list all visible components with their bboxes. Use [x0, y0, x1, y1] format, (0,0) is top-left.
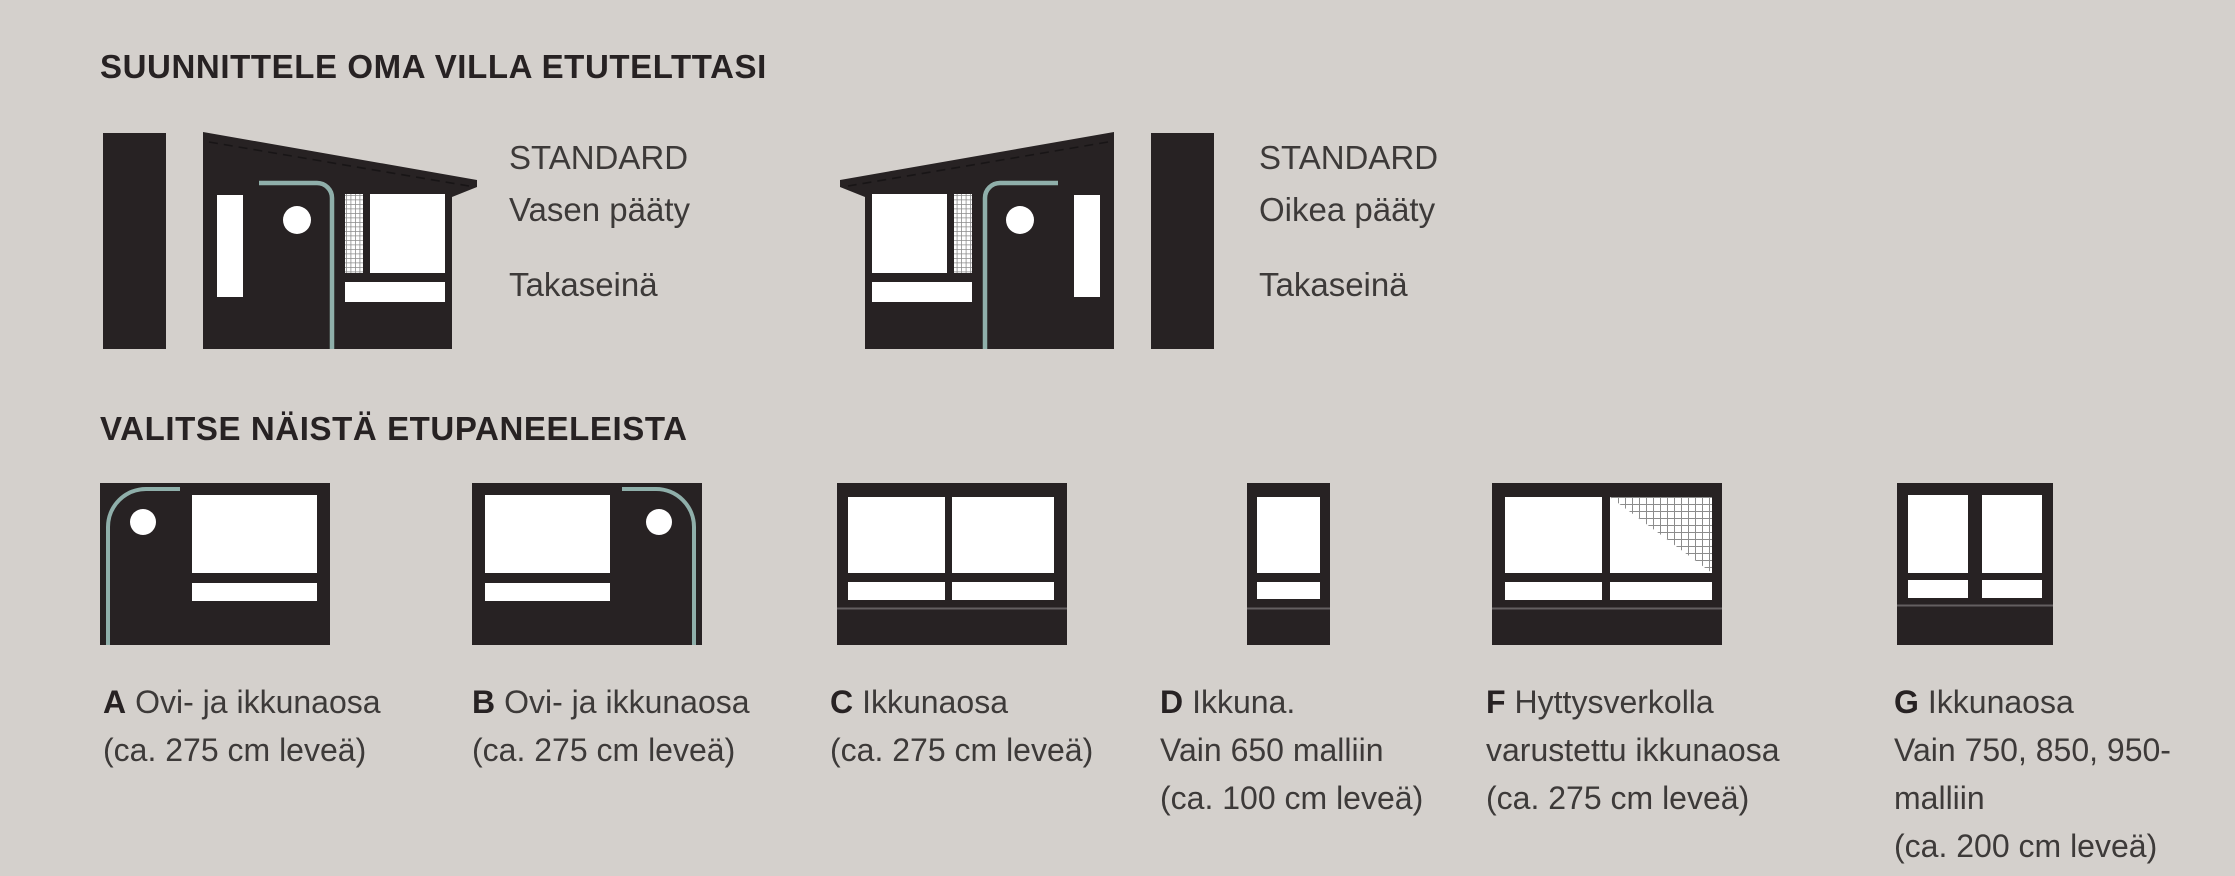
standard-end-label: Oikea pääty	[1259, 184, 1438, 236]
panel-letter: C	[830, 684, 853, 720]
panel-letter: F	[1486, 684, 1506, 720]
side-window	[217, 195, 243, 297]
standard-right-label: STANDARD Oikea pääty Takaseinä	[1259, 132, 1438, 311]
lower-window-strip	[1908, 580, 1968, 598]
panel-f-label: FHyttysverkolla varustettu ikkunaosa (ca…	[1486, 678, 1780, 822]
panel-b-label: BOvi- ja ikkunaosa (ca. 275 cm leveä)	[472, 678, 750, 774]
standard-tier-label: STANDARD	[509, 132, 690, 184]
panel-section-title: VALITSE NÄISTÄ ETUPANEELEISTA	[100, 410, 688, 448]
panel-c-label: CIkkunaosa (ca. 275 cm leveä)	[830, 678, 1093, 774]
standard-end-label: Vasen pääty	[509, 184, 690, 236]
panel-letter: B	[472, 684, 495, 720]
rear-wall-bar	[103, 133, 166, 349]
panel-a-diagram	[100, 483, 330, 645]
lower-window-strip	[952, 582, 1054, 600]
window	[1982, 495, 2042, 573]
window	[952, 497, 1054, 573]
lower-window-strip	[1610, 582, 1712, 600]
lower-window-strip	[345, 282, 445, 302]
panel-letter: G	[1894, 684, 1919, 720]
panel-letter: A	[103, 684, 126, 720]
page-title: SUUNNITTELE OMA VILLA ETUTELTTASI	[100, 48, 767, 86]
panel-g-label: GIkkunaosa Vain 750, 850, 950- malliin (…	[1894, 678, 2171, 870]
door-handle-icon	[283, 206, 311, 234]
panel-g-diagram	[1897, 483, 2053, 645]
panel-d-diagram	[1247, 483, 1330, 645]
panel-c-diagram	[837, 483, 1067, 645]
door-handle-icon	[130, 509, 156, 535]
standard-wall-label: Takaseinä	[509, 259, 690, 311]
window	[1505, 497, 1602, 573]
lower-window-strip	[1505, 582, 1602, 600]
panel-f-diagram	[1492, 483, 1722, 645]
main-window	[370, 194, 445, 273]
lower-window-strip	[848, 582, 945, 600]
lower-window-strip	[1257, 582, 1320, 599]
panel-letter: D	[1160, 684, 1183, 720]
villa-left-end-diagram	[103, 132, 477, 349]
brochure-page: SUUNNITTELE OMA VILLA ETUTELTTASI STANDA…	[0, 0, 2235, 876]
villa-right-end-diagram	[840, 132, 1214, 349]
panel-d-label: DIkkuna. Vain 650 malliin (ca. 100 cm le…	[1160, 678, 1423, 822]
lower-window-strip	[1982, 580, 2042, 598]
standard-tier-label: STANDARD	[1259, 132, 1438, 184]
panel-b-diagram	[472, 483, 702, 645]
standard-wall-label: Takaseinä	[1259, 259, 1438, 311]
panel-a-label: AOvi- ja ikkunaosa (ca. 275 cm leveä)	[103, 678, 381, 774]
window	[1908, 495, 1968, 573]
mesh-strip	[345, 194, 363, 273]
standard-left-label: STANDARD Vasen pääty Takaseinä	[509, 132, 690, 311]
lower-window-strip	[192, 583, 317, 601]
window	[192, 495, 317, 573]
window	[848, 497, 945, 573]
window	[1257, 497, 1320, 573]
